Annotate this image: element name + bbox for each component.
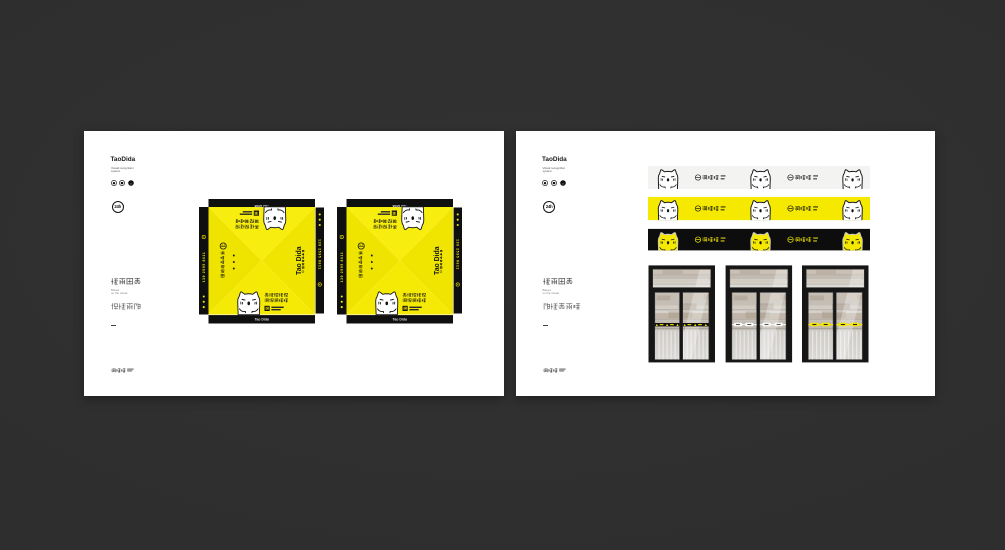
svg-text:139 2595 8611: 139 2595 8611 [340,251,344,282]
svg-text:Tao Dida: Tao Dida [393,317,408,321]
svg-text:Tao Dida: Tao Dida [255,317,270,321]
svg-text:139 2595 8611: 139 2595 8611 [202,251,206,282]
svg-text:139 2595 8611: 139 2595 8611 [456,239,460,270]
svg-text:139 2595 8611: 139 2595 8611 [318,239,322,270]
